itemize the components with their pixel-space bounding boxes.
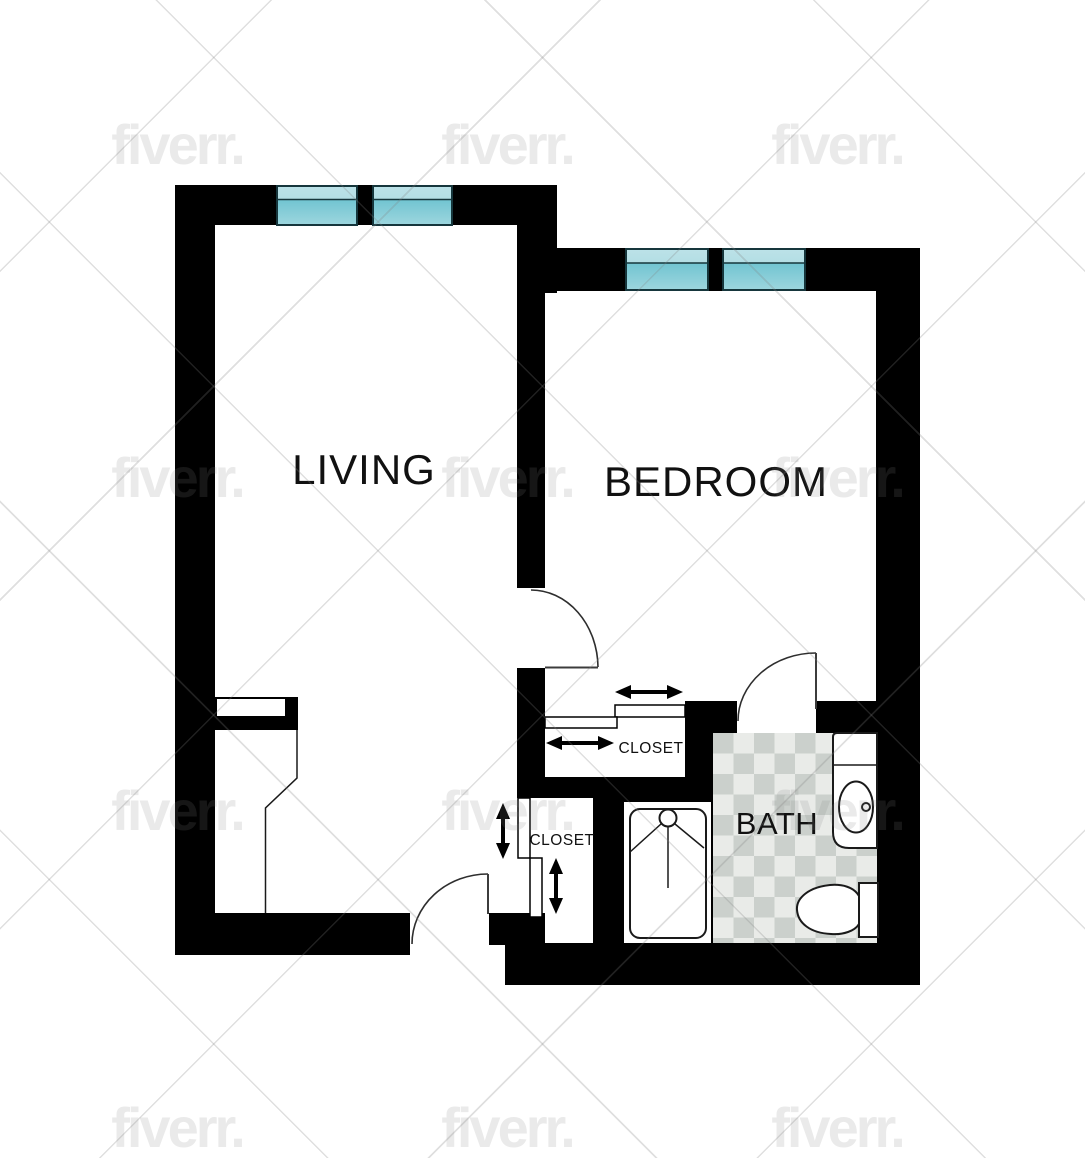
bath-label: BATH [736,806,818,841]
living-window-2 [373,186,452,225]
wall-bottom [505,943,920,985]
shower [624,802,711,943]
wall-left-of-shower [593,798,625,945]
bedroom-door [531,590,598,668]
bedroom-window-2 [723,249,805,290]
wall-entry-step [489,913,545,945]
entry-door [412,874,488,944]
slide-arrow-icon [496,803,510,859]
entry-closet-label: CLOSET [529,832,594,849]
bedroom-window-1 [626,249,708,290]
toilet-tank [859,883,878,937]
door-swing-arc [531,590,598,667]
living-window-1 [277,186,357,225]
door-swing-arc [412,874,488,944]
toilet-bowl [797,885,859,934]
wall-left [175,185,215,955]
toilet [797,883,878,937]
slide-arrow-icon [546,736,614,750]
sliding-panel [530,858,542,917]
wall-bath-top-right [816,701,876,733]
wall-living-top [175,185,557,225]
wall-bedroom-top [557,248,876,291]
bedroom-closet-sliding-doors [545,705,685,728]
bedroom-label: BEDROOM [604,458,828,505]
bedroom-closet-label: CLOSET [618,740,683,757]
wall-closet-bottom [517,777,693,798]
floor-plan-drawing: LIVING BEDROOM BATH CLOSET CLOSET [0,0,1085,1158]
window-glass [626,263,708,290]
bath-door [738,653,816,721]
sliding-panel [518,798,530,858]
window-glass [373,200,452,226]
wall-junction [517,185,557,293]
slide-arrow-icon [615,685,683,699]
shower-head-icon [660,810,677,827]
chamfer-wall-line [266,730,298,913]
window-glass [723,263,805,290]
sink-drain [862,803,870,811]
niche-slot [217,699,285,716]
wall-divider-upper [517,293,545,588]
wall-living-bottom [175,913,410,955]
window-glass [277,200,357,226]
door-swing-arc [738,653,816,721]
entry-closet-sliding-doors [518,798,542,917]
slide-arrow-icon [549,858,563,914]
floor-plan-canvas: LIVING BEDROOM BATH CLOSET CLOSET fiverr… [0,0,1085,1158]
sliding-panel [615,705,685,717]
sliding-panel [545,717,617,728]
vanity-sink [833,733,877,848]
living-room-label: LIVING [292,446,436,493]
wall-right [876,248,920,985]
